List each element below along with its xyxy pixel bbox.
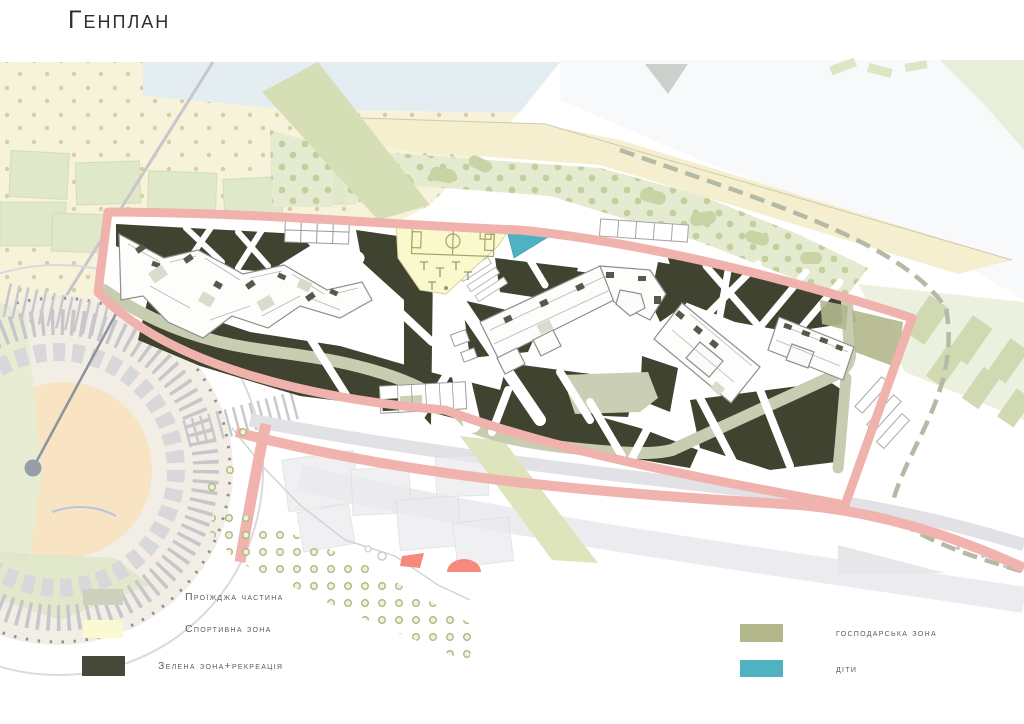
roadway-label: Проїжджа частина — [185, 591, 284, 603]
children-zone-label: діти — [836, 663, 857, 675]
legend-item-sport-zone: Спортивна зона — [83, 620, 272, 638]
sport-zone-swatch — [83, 620, 123, 638]
children-zone-swatch — [740, 660, 783, 677]
green-zone-swatch — [82, 656, 125, 676]
legend-item-utility-zone: господарська зона — [740, 624, 937, 642]
utility-zone-swatch — [740, 624, 783, 642]
masterplan-map — [0, 0, 1024, 724]
utility-zone-label: господарська зона — [836, 627, 937, 639]
masterplan-page: Генплан Проїжджа частина Спортивна зона … — [0, 0, 1024, 724]
legend-item-roadway: Проїжджа частина — [83, 589, 284, 605]
page-title: Генплан — [68, 6, 170, 35]
green-zone-label: Зелена зона+рекреація — [158, 660, 283, 672]
roadway-swatch — [83, 589, 123, 605]
legend-item-green-zone: Зелена зона+рекреація — [82, 656, 283, 676]
legend-item-children-zone: діти — [740, 660, 857, 677]
sport-zone-label: Спортивна зона — [185, 623, 272, 635]
